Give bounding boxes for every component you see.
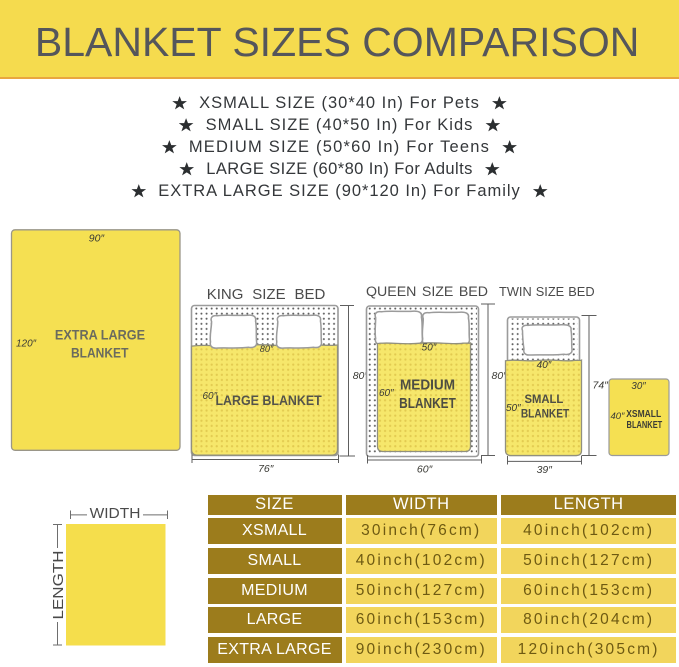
svg-text:BLANKET: BLANKET xyxy=(627,420,663,431)
svg-text:XSMALL: XSMALL xyxy=(626,409,661,420)
svg-text:90″: 90″ xyxy=(89,232,106,244)
svg-text:40″: 40″ xyxy=(611,411,626,422)
svg-text:74″: 74″ xyxy=(593,380,610,392)
svg-text:39″: 39″ xyxy=(537,464,554,476)
svg-text:KING SIZE BED: KING SIZE BED xyxy=(207,286,326,303)
svg-text:BLANKET: BLANKET xyxy=(71,345,129,361)
svg-text:LENGTH: LENGTH xyxy=(51,551,67,620)
svg-text:60″: 60″ xyxy=(417,463,434,475)
svg-text:30″: 30″ xyxy=(631,381,646,392)
svg-text:LARGE BLANKET: LARGE BLANKET xyxy=(215,392,322,408)
svg-text:EXTRA LARGE: EXTRA LARGE xyxy=(55,326,145,342)
svg-text:BLANKET: BLANKET xyxy=(399,396,456,412)
svg-text:80″: 80″ xyxy=(260,344,274,354)
svg-text:WIDTH: WIDTH xyxy=(90,506,141,522)
svg-text:MEDIUM: MEDIUM xyxy=(400,377,455,393)
svg-text:QUEEN SIZE BED: QUEEN SIZE BED xyxy=(366,284,488,300)
svg-text:50″: 50″ xyxy=(506,403,521,414)
svg-text:120″: 120″ xyxy=(16,338,37,349)
svg-text:60″: 60″ xyxy=(379,388,394,399)
svg-text:76″: 76″ xyxy=(258,463,275,475)
svg-text:40″: 40″ xyxy=(537,360,552,371)
svg-text:50″: 50″ xyxy=(422,343,437,354)
svg-text:SMALL: SMALL xyxy=(524,392,563,406)
svg-text:TWIN SIZE BED: TWIN SIZE BED xyxy=(499,284,595,299)
svg-text:BLANKET: BLANKET xyxy=(521,407,570,421)
